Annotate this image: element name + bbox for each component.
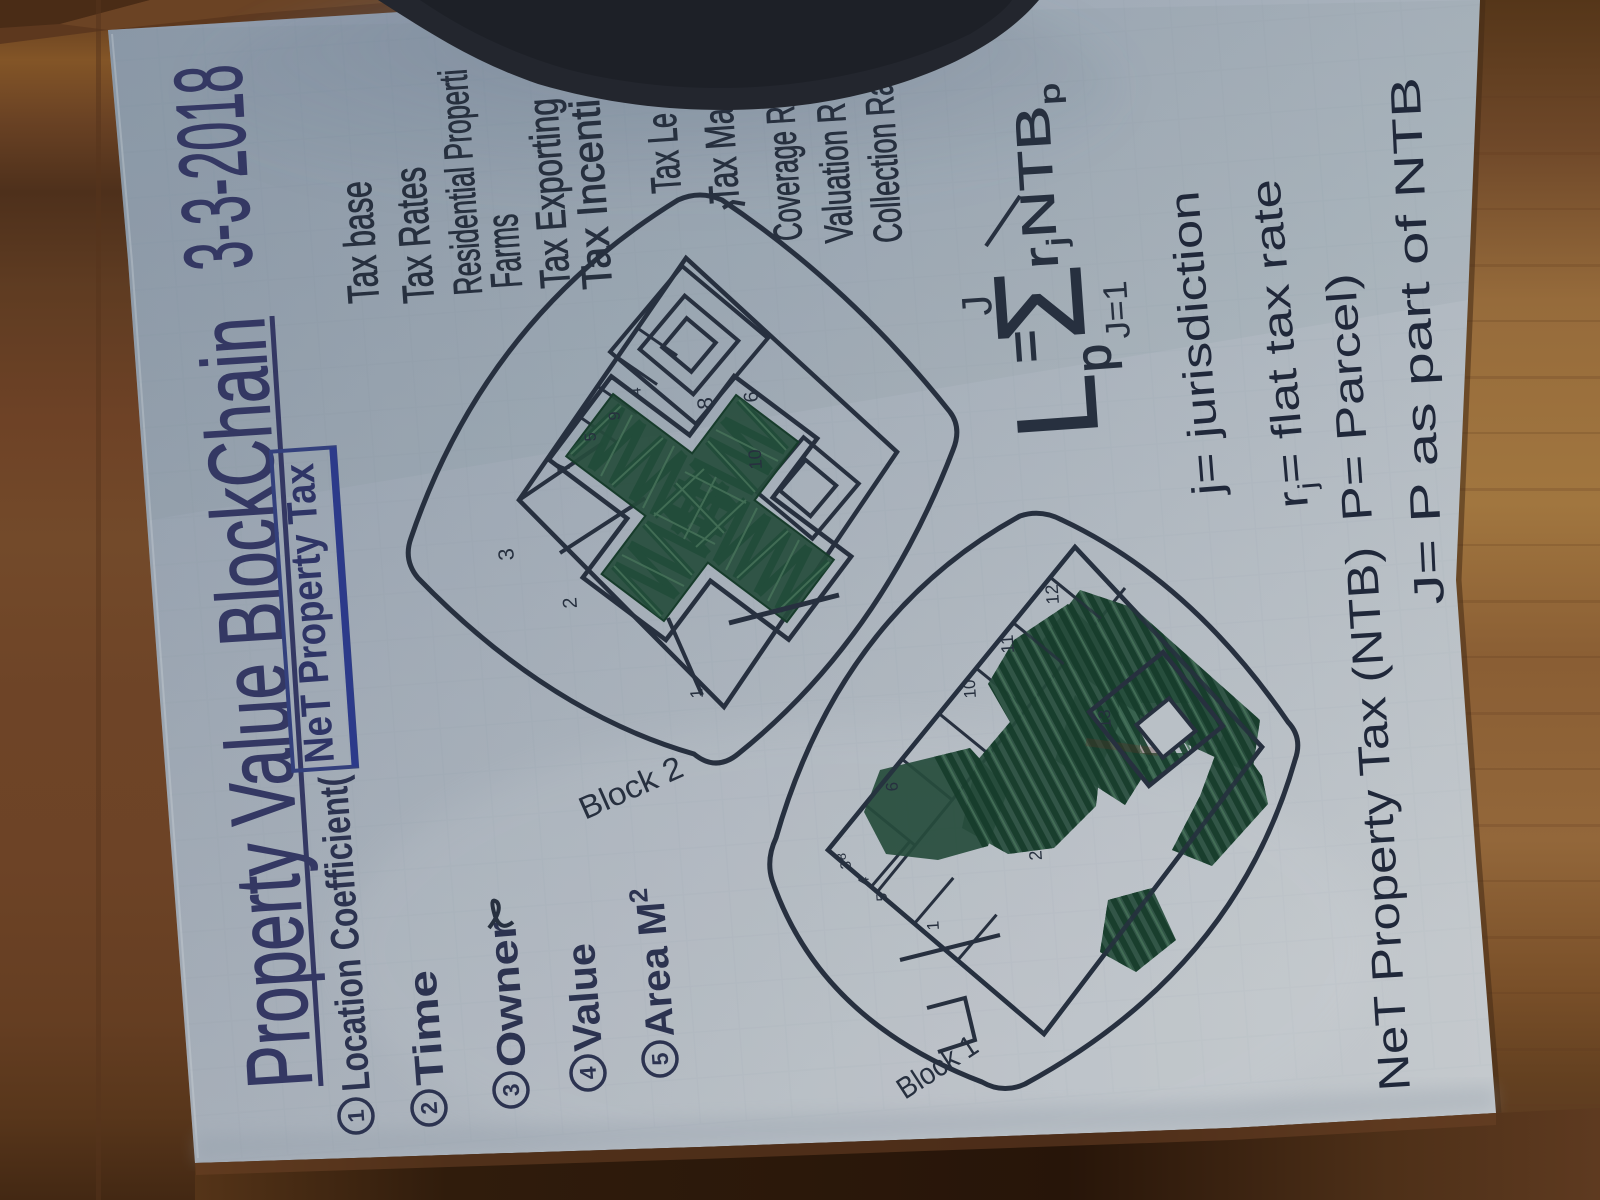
svg-text:Valuation R: Valuation R xyxy=(810,102,862,244)
svg-text:6: 6 xyxy=(882,781,902,792)
svg-text:Tax base: Tax base xyxy=(332,180,389,305)
svg-text:8: 8 xyxy=(834,853,849,861)
svg-text:7: 7 xyxy=(553,462,574,473)
svg-text:3: 3 xyxy=(837,860,855,870)
svg-text:1: 1 xyxy=(923,920,943,931)
svg-text:Time: Time xyxy=(400,969,452,1087)
svg-text:5: 5 xyxy=(647,1052,674,1067)
svg-text:10: 10 xyxy=(745,449,766,470)
svg-text:8: 8 xyxy=(692,396,718,410)
svg-text:13: 13 xyxy=(1095,709,1115,729)
svg-text:6: 6 xyxy=(740,391,763,404)
svg-text:1: 1 xyxy=(343,1109,370,1124)
svg-text:Tax Rates: Tax Rates xyxy=(386,166,444,305)
svg-text:12: 12 xyxy=(1042,584,1063,605)
svg-text:10: 10 xyxy=(960,679,980,699)
svg-text:Value: Value xyxy=(559,942,611,1053)
svg-text:1: 1 xyxy=(686,688,707,699)
svg-text:4: 4 xyxy=(627,387,645,397)
svg-text:Tax Le: Tax Le xyxy=(638,112,690,195)
svg-text:9: 9 xyxy=(606,411,624,421)
svg-text:2: 2 xyxy=(559,597,582,610)
svg-text:Farms: Farms xyxy=(478,212,532,289)
svg-text:3: 3 xyxy=(498,1083,525,1098)
svg-text:11: 11 xyxy=(997,634,1018,654)
svg-text:J=1: J=1 xyxy=(1096,280,1138,341)
svg-text:5: 5 xyxy=(582,432,600,442)
svg-text:4: 4 xyxy=(855,876,873,886)
svg-text:2: 2 xyxy=(1025,850,1046,861)
svg-text:5: 5 xyxy=(873,892,891,902)
svg-text:Coverage R: Coverage R xyxy=(759,105,811,242)
svg-text:2: 2 xyxy=(416,1101,443,1116)
svg-text:4: 4 xyxy=(575,1066,602,1081)
svg-text:J: J xyxy=(953,293,1001,317)
svg-text:Tax Ma: Tax Ma xyxy=(694,106,748,204)
svg-text:3-3-2018: 3-3-2018 xyxy=(155,62,273,273)
svg-text:3: 3 xyxy=(493,547,519,561)
